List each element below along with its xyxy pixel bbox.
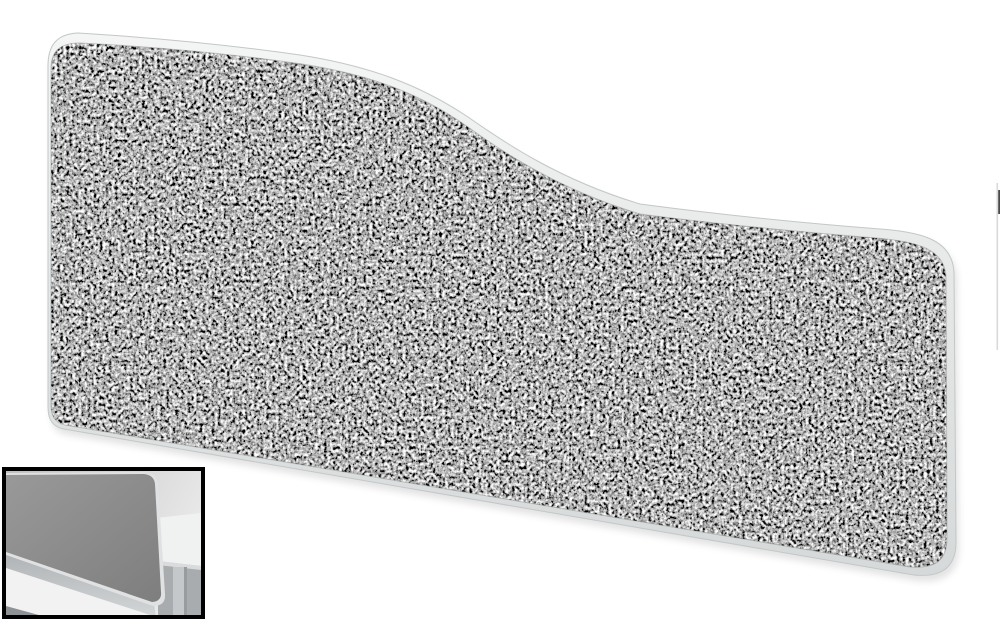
thumbnail-desk-top <box>156 513 201 566</box>
thumbnail-desk-view-image <box>6 471 201 615</box>
product-image-stage <box>0 0 1000 619</box>
thumbnail-desk-view[interactable] <box>2 467 205 619</box>
right-edge-artifact-faint <box>997 183 999 350</box>
thumbnail-desk-leg-shade <box>184 567 187 615</box>
